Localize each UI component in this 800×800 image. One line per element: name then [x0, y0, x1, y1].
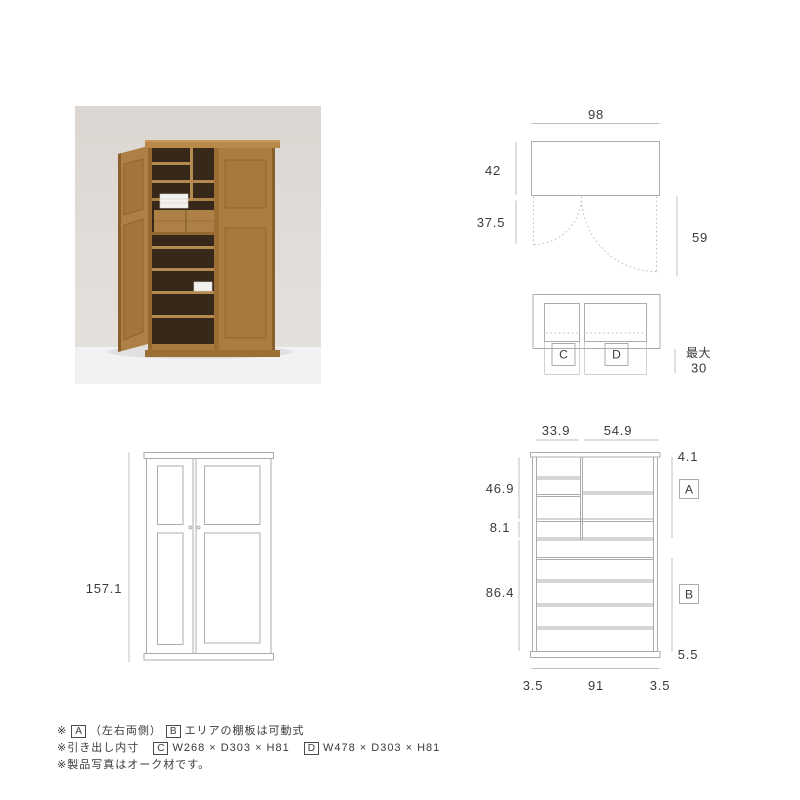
top-view-open-depth-label: 59	[692, 230, 708, 245]
product-photo	[75, 106, 321, 384]
drawer-top-cabinet	[533, 295, 660, 349]
inner-left-side-label: 3.5	[523, 678, 543, 693]
front-view-knob-right	[197, 526, 200, 529]
note1-mark: ※	[57, 723, 67, 740]
note2-mark: ※	[57, 740, 67, 757]
note-line-3: ※ 製品写真はオーク材です。	[57, 757, 440, 774]
drawer-max-value: 30	[691, 361, 707, 376]
top-view-door-swing-label: 37.5	[477, 215, 506, 230]
inner-right-side-label: 3.5	[650, 678, 670, 693]
note-line-1: ※ A （左右両側） B エリアの棚板は可動式	[57, 723, 440, 740]
inner-front-view-diagram: 33.9 54.9 46.9 8.1 86.4 4.1 A B 5.5 3.5 …	[460, 415, 720, 700]
front-view-cabinet	[144, 453, 274, 661]
zone-a-tag: A	[680, 480, 699, 499]
zone-a-label: A	[685, 483, 693, 497]
front-view-diagram: 157.1	[75, 430, 305, 675]
inner-drawer-height-label: 8.1	[490, 520, 510, 535]
inner-dim-lines	[519, 440, 672, 669]
drawer-top-view-diagram: C D 最大 30	[460, 288, 730, 388]
inner-base-height-label: 5.5	[678, 647, 698, 662]
note3-text: 製品写真はオーク材です。	[67, 757, 210, 774]
photo-open-door	[118, 146, 148, 352]
photo-interior	[152, 148, 214, 344]
note1-box-a: A	[71, 725, 86, 738]
note2-box-c: C	[153, 742, 168, 755]
note2-box-d: D	[304, 742, 319, 755]
note1-box-b: B	[166, 725, 181, 738]
inner-right-width-label: 54.9	[604, 423, 633, 438]
footnotes: ※ A （左右両側） B エリアの棚板は可動式 ※ 引き出し内寸 C W268 …	[57, 723, 440, 774]
drawer-d-tag: D	[605, 344, 628, 366]
inner-width-label: 91	[588, 678, 604, 693]
note1-text2: エリアの棚板は可動式	[185, 723, 305, 740]
top-view-cabinet	[532, 142, 660, 196]
note2-text-d: W478 × D303 × H81	[323, 740, 440, 757]
front-view-knob-left	[189, 526, 192, 529]
note2-label: 引き出し内寸	[67, 740, 139, 757]
top-view-door-swing	[534, 197, 657, 275]
front-view-height-label: 157.1	[86, 581, 123, 596]
note-line-2: ※ 引き出し内寸 C W268 × D303 × H81 D W478 × D3…	[57, 740, 440, 757]
drawer-c-label: C	[559, 348, 568, 362]
note3-mark: ※	[57, 757, 67, 774]
top-view-dim-lines	[516, 124, 677, 277]
note1-text1: （左右両側）	[90, 723, 162, 740]
inner-upper-height-label: 46.9	[486, 481, 515, 496]
photo-towels	[160, 194, 188, 208]
photo-towel-small	[194, 282, 212, 291]
inner-lower-height-label: 86.4	[486, 585, 515, 600]
zone-b-tag: B	[680, 585, 699, 604]
drawer-d-label: D	[612, 348, 621, 362]
note2-text-c: W268 × D303 × H81	[172, 740, 289, 757]
inner-left-width-label: 33.9	[542, 423, 571, 438]
drawer-max-label: 最大	[686, 346, 711, 360]
photo-wardrobe	[118, 140, 280, 357]
top-view-width-label: 98	[588, 107, 604, 122]
top-view-depth-label: 42	[485, 163, 501, 178]
zone-b-label: B	[685, 588, 693, 602]
inner-cabinet	[531, 453, 661, 658]
inner-top-thickness-label: 4.1	[678, 449, 698, 464]
photo-closed-door	[219, 148, 272, 350]
top-view-diagram: 98 42 37.5 59	[460, 100, 730, 285]
drawer-c-tag: C	[552, 344, 575, 366]
photo-base	[145, 350, 280, 357]
